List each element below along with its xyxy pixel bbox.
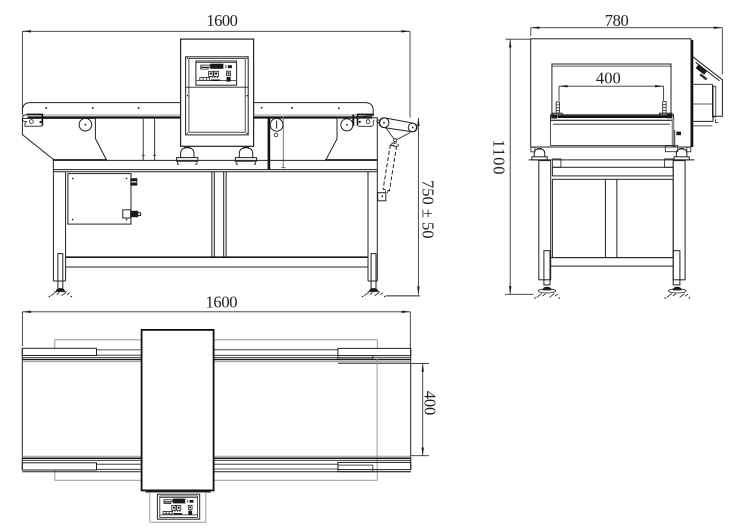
svg-text:400: 400: [421, 391, 440, 416]
svg-text:400: 400: [596, 69, 621, 88]
svg-text:1600: 1600: [206, 11, 238, 30]
svg-text:780: 780: [605, 11, 629, 30]
svg-text:1100: 1100: [490, 140, 509, 175]
svg-text:750 ± 50: 750 ± 50: [419, 180, 438, 239]
svg-text:1600: 1600: [206, 293, 238, 312]
